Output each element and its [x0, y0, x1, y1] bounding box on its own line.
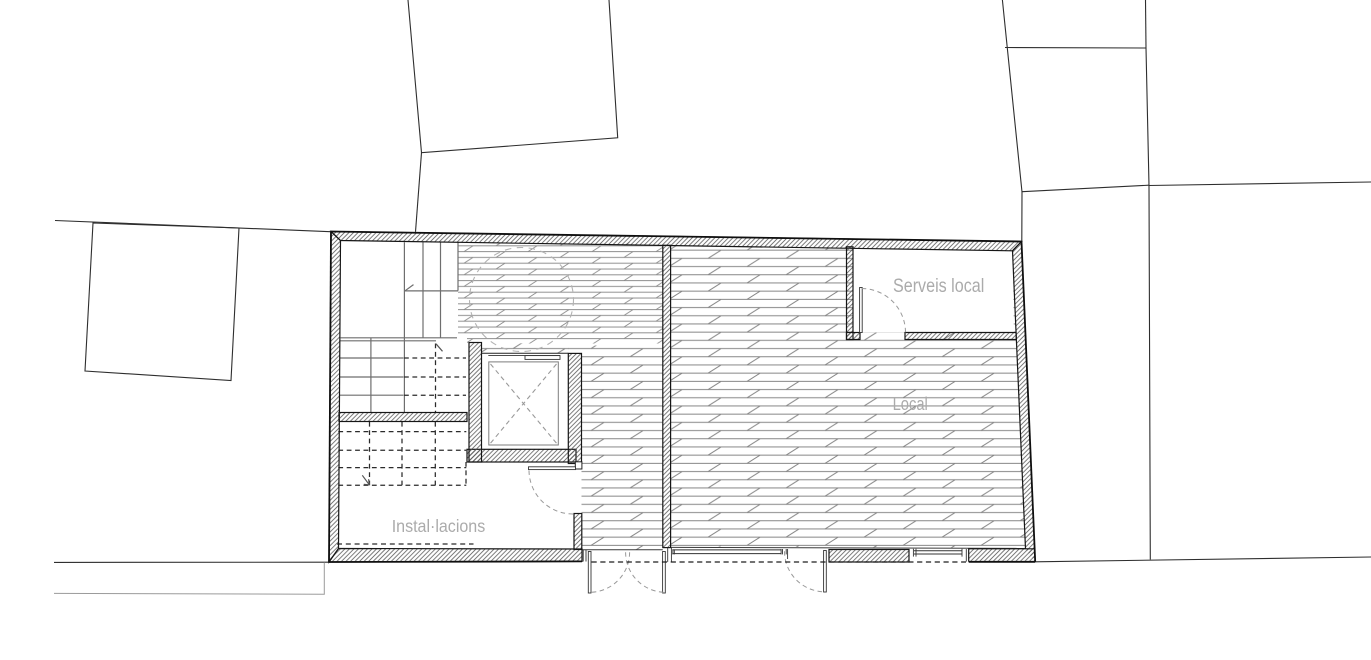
svg-text:Serveis local: Serveis local [893, 275, 984, 297]
svg-text:Instal·lacions: Instal·lacions [392, 516, 486, 536]
svg-text:Local: Local [893, 393, 928, 414]
